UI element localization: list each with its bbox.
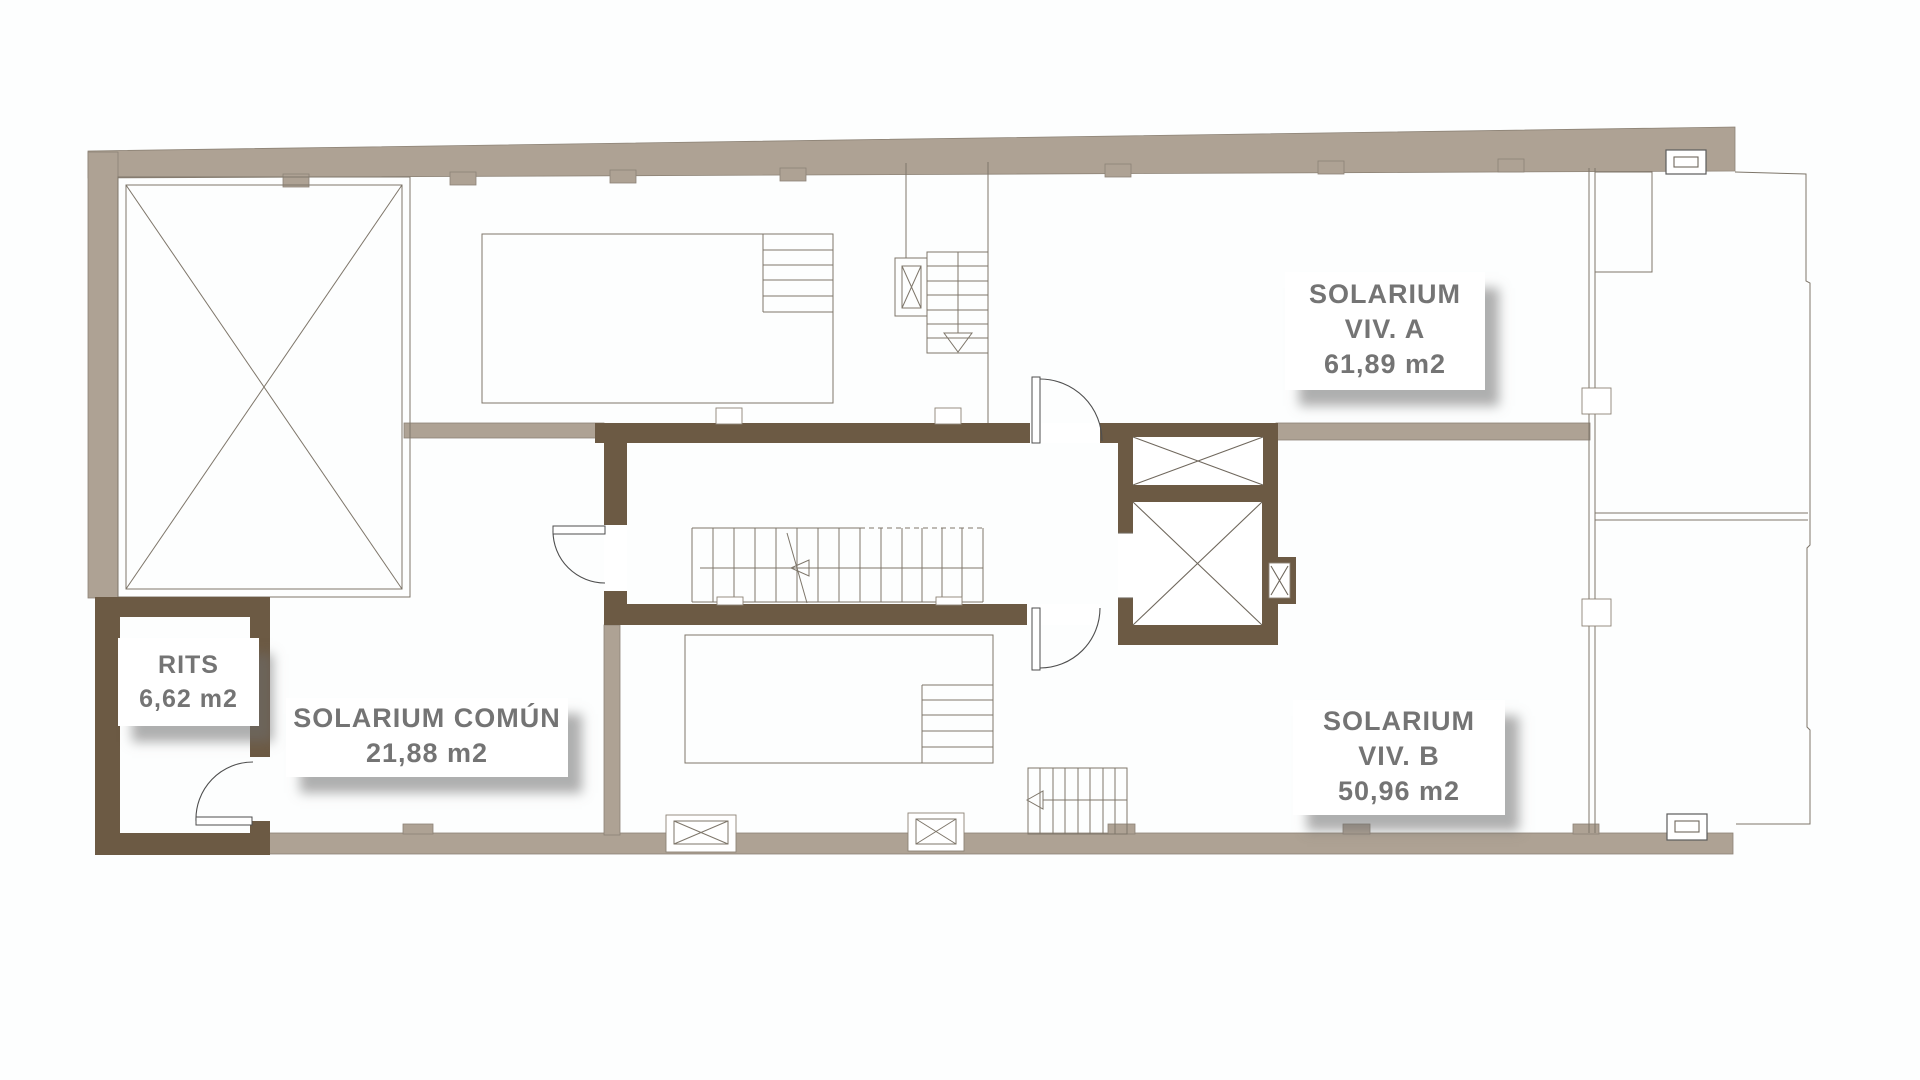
core-door-viv-a-leaf: [1032, 377, 1040, 443]
room-area: 6,62 m2: [118, 682, 259, 716]
label-solarium-comun: SOLARIUM COMÚN 21,88 m2: [286, 698, 568, 777]
core-door-viv-b-leaf: [1032, 608, 1040, 670]
core-door-viv-b: [1027, 604, 1100, 670]
core-wall-left-upper: [604, 443, 627, 527]
partition-wall-mid-left: [404, 423, 604, 438]
room-area: 21,88 m2: [286, 736, 568, 771]
room-name: VIV. B: [1293, 739, 1505, 774]
right-gallery: [1582, 150, 1810, 840]
vent-box-x: [666, 815, 736, 852]
wall-notch: [1343, 824, 1370, 834]
wall-notch: [780, 168, 806, 181]
label-solarium-viv-b: SOLARIUM VIV. B 50,96 m2: [1293, 700, 1505, 815]
pool-steps: [763, 234, 833, 312]
room-area: 61,89 m2: [1285, 347, 1485, 382]
room-name: SOLARIUM: [1285, 277, 1485, 312]
pilaster: [1582, 388, 1611, 414]
core-door-viv-a: [1030, 377, 1102, 443]
stair-left-arrow-icon: [1027, 791, 1043, 809]
elevator-block: [1118, 423, 1296, 645]
room-name: VIV. A: [1285, 312, 1485, 347]
pool-viv-a: [482, 234, 833, 403]
vent-box-x: [908, 813, 964, 851]
room-name: SOLARIUM COMÚN: [286, 701, 568, 736]
stair-down-arrow-icon: [944, 333, 972, 352]
rits-wall-bottom: [95, 833, 270, 855]
rits-door: [196, 762, 253, 825]
wall-notch: [1498, 159, 1524, 172]
room-name: RITS: [118, 648, 259, 682]
rits-room: [95, 597, 270, 855]
rits-wall-left: [95, 597, 120, 855]
wall-notch: [450, 172, 476, 185]
label-solarium-viv-a: SOLARIUM VIV. A 61,89 m2: [1285, 272, 1485, 390]
rits-door-leaf: [196, 817, 252, 825]
outer-wall-bottom: [266, 833, 1733, 854]
outer-wall-left: [88, 152, 118, 598]
column-marker: [716, 408, 742, 424]
core-wall-top-left: [595, 423, 1030, 443]
core-door-west: [553, 525, 627, 591]
pilaster: [1582, 599, 1611, 626]
wall-notch: [610, 170, 636, 183]
elevator-door-gap: [1118, 533, 1133, 598]
skylight-x-icon: [126, 185, 402, 589]
column-marker: [717, 597, 743, 605]
wall-notch: [1108, 824, 1135, 834]
wall-notch: [403, 824, 433, 834]
corner-enclosure: [1595, 172, 1652, 272]
main-staircase: [692, 528, 983, 603]
elevator-machine-box: [1263, 557, 1296, 604]
outer-wall-top: [88, 127, 1735, 178]
pool-outline: [482, 234, 833, 403]
floor-plan-drawing: [0, 0, 1920, 1080]
pool-steps: [922, 685, 993, 763]
core-wall-bottom: [604, 604, 1027, 625]
skylight-shaft: [118, 177, 410, 597]
vent-symbol: [1666, 150, 1706, 174]
column-marker: [936, 597, 962, 605]
terrace-outline: [1735, 172, 1810, 824]
pool-viv-b: [685, 635, 993, 763]
rits-wall-top: [95, 597, 270, 617]
wall-notch: [1318, 161, 1344, 174]
vent-symbol: [1667, 814, 1707, 840]
room-area: 50,96 m2: [1293, 774, 1505, 809]
rits-door-arc: [196, 762, 253, 821]
wall-notch: [1105, 164, 1131, 177]
partition-wall-mid-right: [1276, 423, 1590, 440]
label-rits: RITS 6,62 m2: [118, 638, 259, 726]
stair-viv-a: [895, 162, 988, 423]
pool-outline: [685, 635, 993, 763]
floor-plan-page: RITS 6,62 m2 SOLARIUM COMÚN 21,88 m2 SOL…: [0, 0, 1920, 1080]
core-door-west-arc: [553, 531, 605, 583]
column-marker: [935, 408, 961, 424]
room-name: SOLARIUM: [1293, 704, 1505, 739]
divider-wall-comun-vivb: [604, 625, 620, 835]
core-door-west-leaf: [553, 526, 605, 534]
